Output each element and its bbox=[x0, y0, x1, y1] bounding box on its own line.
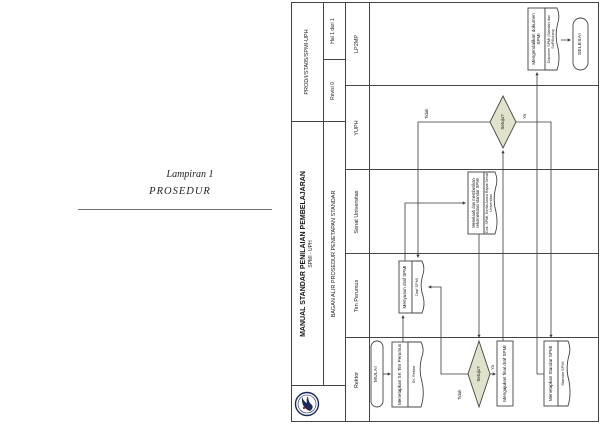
prosedur-heading: PROSEDUR bbox=[105, 186, 255, 197]
rektor-ya-label: Ya bbox=[490, 354, 497, 370]
mulai-label: MULAI bbox=[371, 341, 383, 407]
draf-spmi-label: Draf SPMI bbox=[412, 261, 423, 313]
doc-type: BAGAN ALIR PROSEDUR PENETAPAN STANDAR bbox=[324, 123, 344, 385]
mengajukan-final-label: Mengajukan final draf SPMI bbox=[497, 341, 513, 406]
flowchart-page: MANUAL STANDAR PENILAIAN PEMBELAJARAN SP… bbox=[291, 2, 599, 422]
lane-yuph: YUPH bbox=[346, 86, 369, 170]
berita-acara-label: Dok. SPMI, Berita Acara Rapat Senat Univ… bbox=[484, 173, 496, 233]
lane-senat-universitas: Senat Universitas bbox=[346, 170, 369, 254]
lampiran-heading: Lampiran 1 bbox=[120, 169, 260, 180]
yuph-tidak-label: Tidak bbox=[424, 97, 431, 119]
page-info: Hal 1 dari 1 bbox=[324, 3, 344, 59]
rektor-setuju-label: Setuju? bbox=[468, 341, 490, 407]
revision: Revisi 0 bbox=[324, 61, 344, 121]
left-page: Lampiran 1 PROSEDUR bbox=[0, 0, 290, 424]
menetapkan-sk-label: Menetapkan SK Tim Perumus bbox=[392, 342, 408, 407]
document-viewer: Lampiran 1 PROSEDUR bbox=[0, 0, 600, 424]
yuph-setuju-label: Setuju? bbox=[490, 96, 516, 148]
manual-title: MANUAL STANDAR PENILAIAN PEMBELAJARAN bbox=[300, 171, 308, 337]
spmi-uph-subtitle: SPMI - UPH bbox=[309, 240, 315, 267]
standar-spmi-label: Standar SPMI bbox=[558, 341, 569, 406]
header-title-cell: MANUAL STANDAR PENILAIAN PEMBELAJARAN SP… bbox=[293, 123, 322, 385]
uph-logo-icon bbox=[296, 393, 319, 416]
selesai-label: SELESAI bbox=[573, 18, 588, 70]
doc-code: PROD/I/STA05/SPMI-UPH bbox=[293, 3, 322, 121]
lane-tim-perumus: Tim Perumus bbox=[346, 254, 369, 338]
menetapkan-standar-label: Menetapkan Standar SPMI bbox=[544, 341, 558, 406]
sk-rektor-label: SK Rektor bbox=[408, 342, 421, 407]
menelaah-label: Menelaah dan memberikan rekomendasi stan… bbox=[468, 173, 484, 233]
yuph-ya-label: Ya bbox=[522, 105, 529, 119]
lane-lp2mp: LP2MP bbox=[346, 2, 369, 86]
lane-rektor: Rektor bbox=[346, 338, 369, 422]
rektor-tidak-label: Tidak bbox=[457, 378, 464, 400]
menyusun-draf-label: Menyusun draf SPMI bbox=[399, 261, 412, 313]
horizontal-rule bbox=[78, 209, 272, 210]
dokumen-spmi-label: Dokumen SPMI (Standar) dan SoP/Borang bbox=[545, 9, 558, 69]
mengendalikan-label: Mengendalikan dokumen SPMI bbox=[528, 8, 545, 70]
